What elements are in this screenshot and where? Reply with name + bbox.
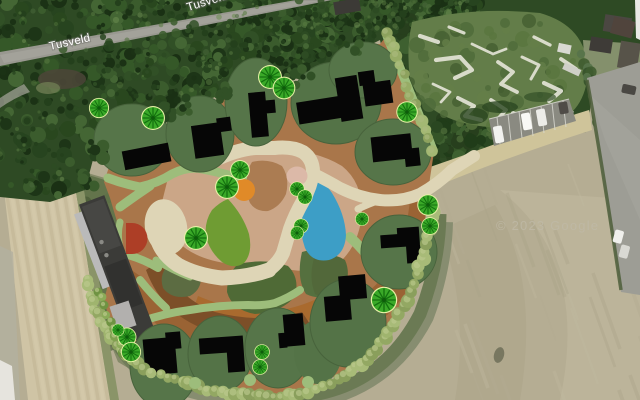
svg-text:© 2023 Google: © 2023 Google — [496, 218, 599, 233]
